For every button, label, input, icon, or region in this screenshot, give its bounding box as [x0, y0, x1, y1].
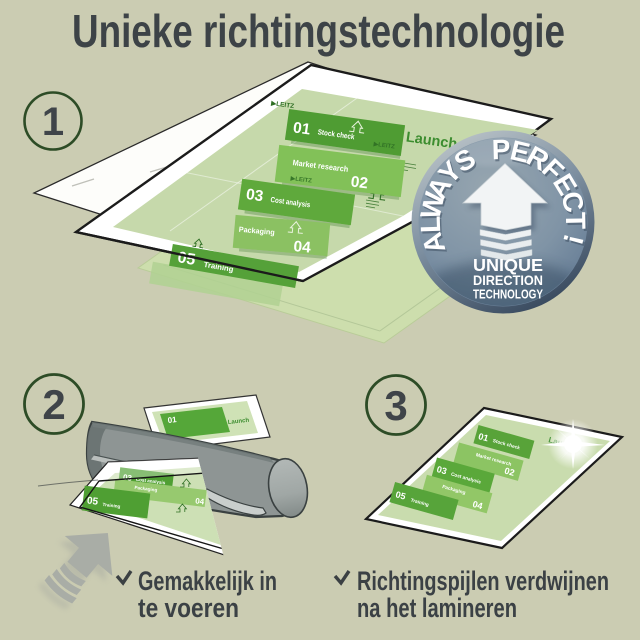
svg-text:05: 05: [176, 249, 197, 269]
svg-text:Richtingspijlen verdwijnen: Richtingspijlen verdwijnen: [357, 566, 609, 596]
svg-text:1: 1: [42, 100, 64, 144]
svg-text:03: 03: [245, 186, 265, 205]
svg-text:04: 04: [195, 496, 205, 506]
svg-text:T: T: [560, 212, 591, 230]
svg-text:04: 04: [293, 238, 312, 256]
svg-text:Gemakkelijk in: Gemakkelijk in: [138, 566, 277, 596]
svg-text:te voeren: te voeren: [138, 593, 239, 623]
svg-text:3: 3: [384, 382, 407, 429]
svg-text:TECHNOLOGY: TECHNOLOGY: [473, 288, 544, 302]
svg-text:2: 2: [42, 381, 65, 428]
svg-text:Unieke richtingstechnologie: Unieke richtingstechnologie: [72, 5, 565, 57]
svg-text:01: 01: [292, 119, 312, 138]
svg-text:02: 02: [350, 173, 369, 192]
svg-text:UNIQUE: UNIQUE: [473, 255, 543, 275]
svg-text:05: 05: [86, 495, 99, 507]
svg-text:01: 01: [167, 415, 177, 425]
svg-text:na het lamineren: na het lamineren: [357, 593, 517, 623]
svg-text:DIRECTION: DIRECTION: [473, 273, 543, 288]
